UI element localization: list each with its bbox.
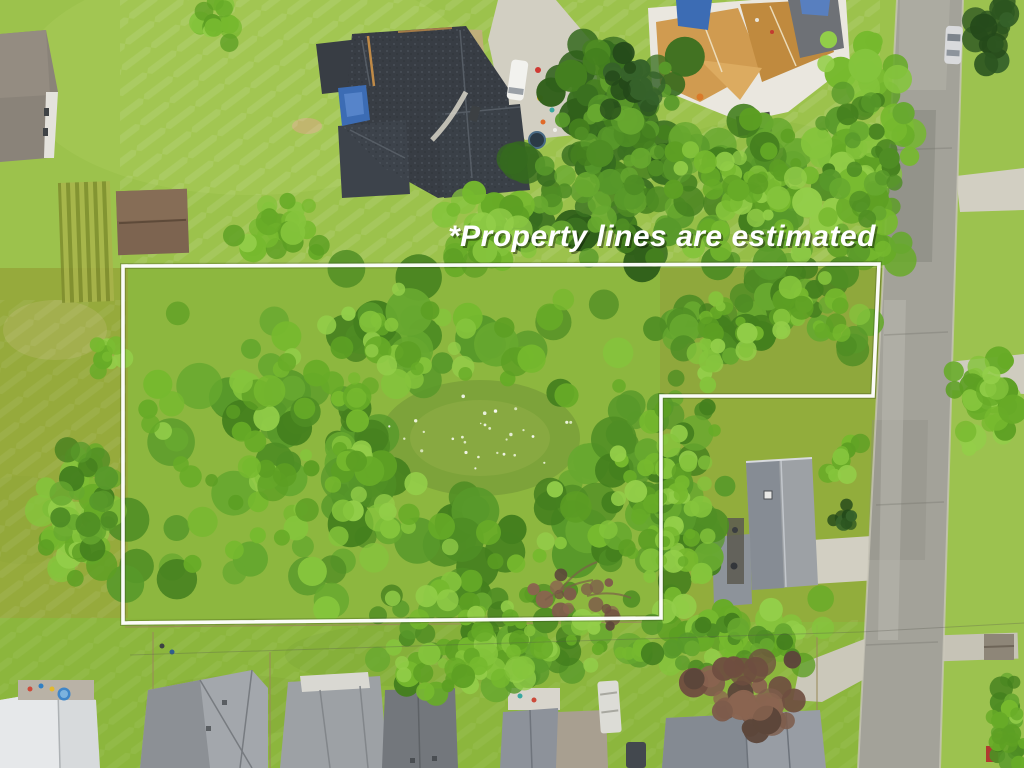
house-bottom-c xyxy=(280,672,388,768)
garden-rows xyxy=(58,181,114,303)
dark-truck xyxy=(626,742,646,768)
disclaimer-text: *Property lines are estimated xyxy=(448,220,876,253)
blue-tarp xyxy=(338,85,370,126)
silver-car xyxy=(944,26,963,65)
lift-machine xyxy=(697,94,704,101)
rv-trailer xyxy=(597,680,622,733)
blue-tarp xyxy=(676,0,712,30)
shed-right-of-road xyxy=(984,634,1014,660)
house-bottom-d xyxy=(382,688,458,768)
shed-brown xyxy=(116,189,189,255)
aerial-property-photo: *Property lines are estimated *Property … xyxy=(0,0,1024,768)
house-top-left-corner xyxy=(0,30,58,162)
blue-tarp xyxy=(800,0,830,16)
chimney xyxy=(764,491,772,499)
